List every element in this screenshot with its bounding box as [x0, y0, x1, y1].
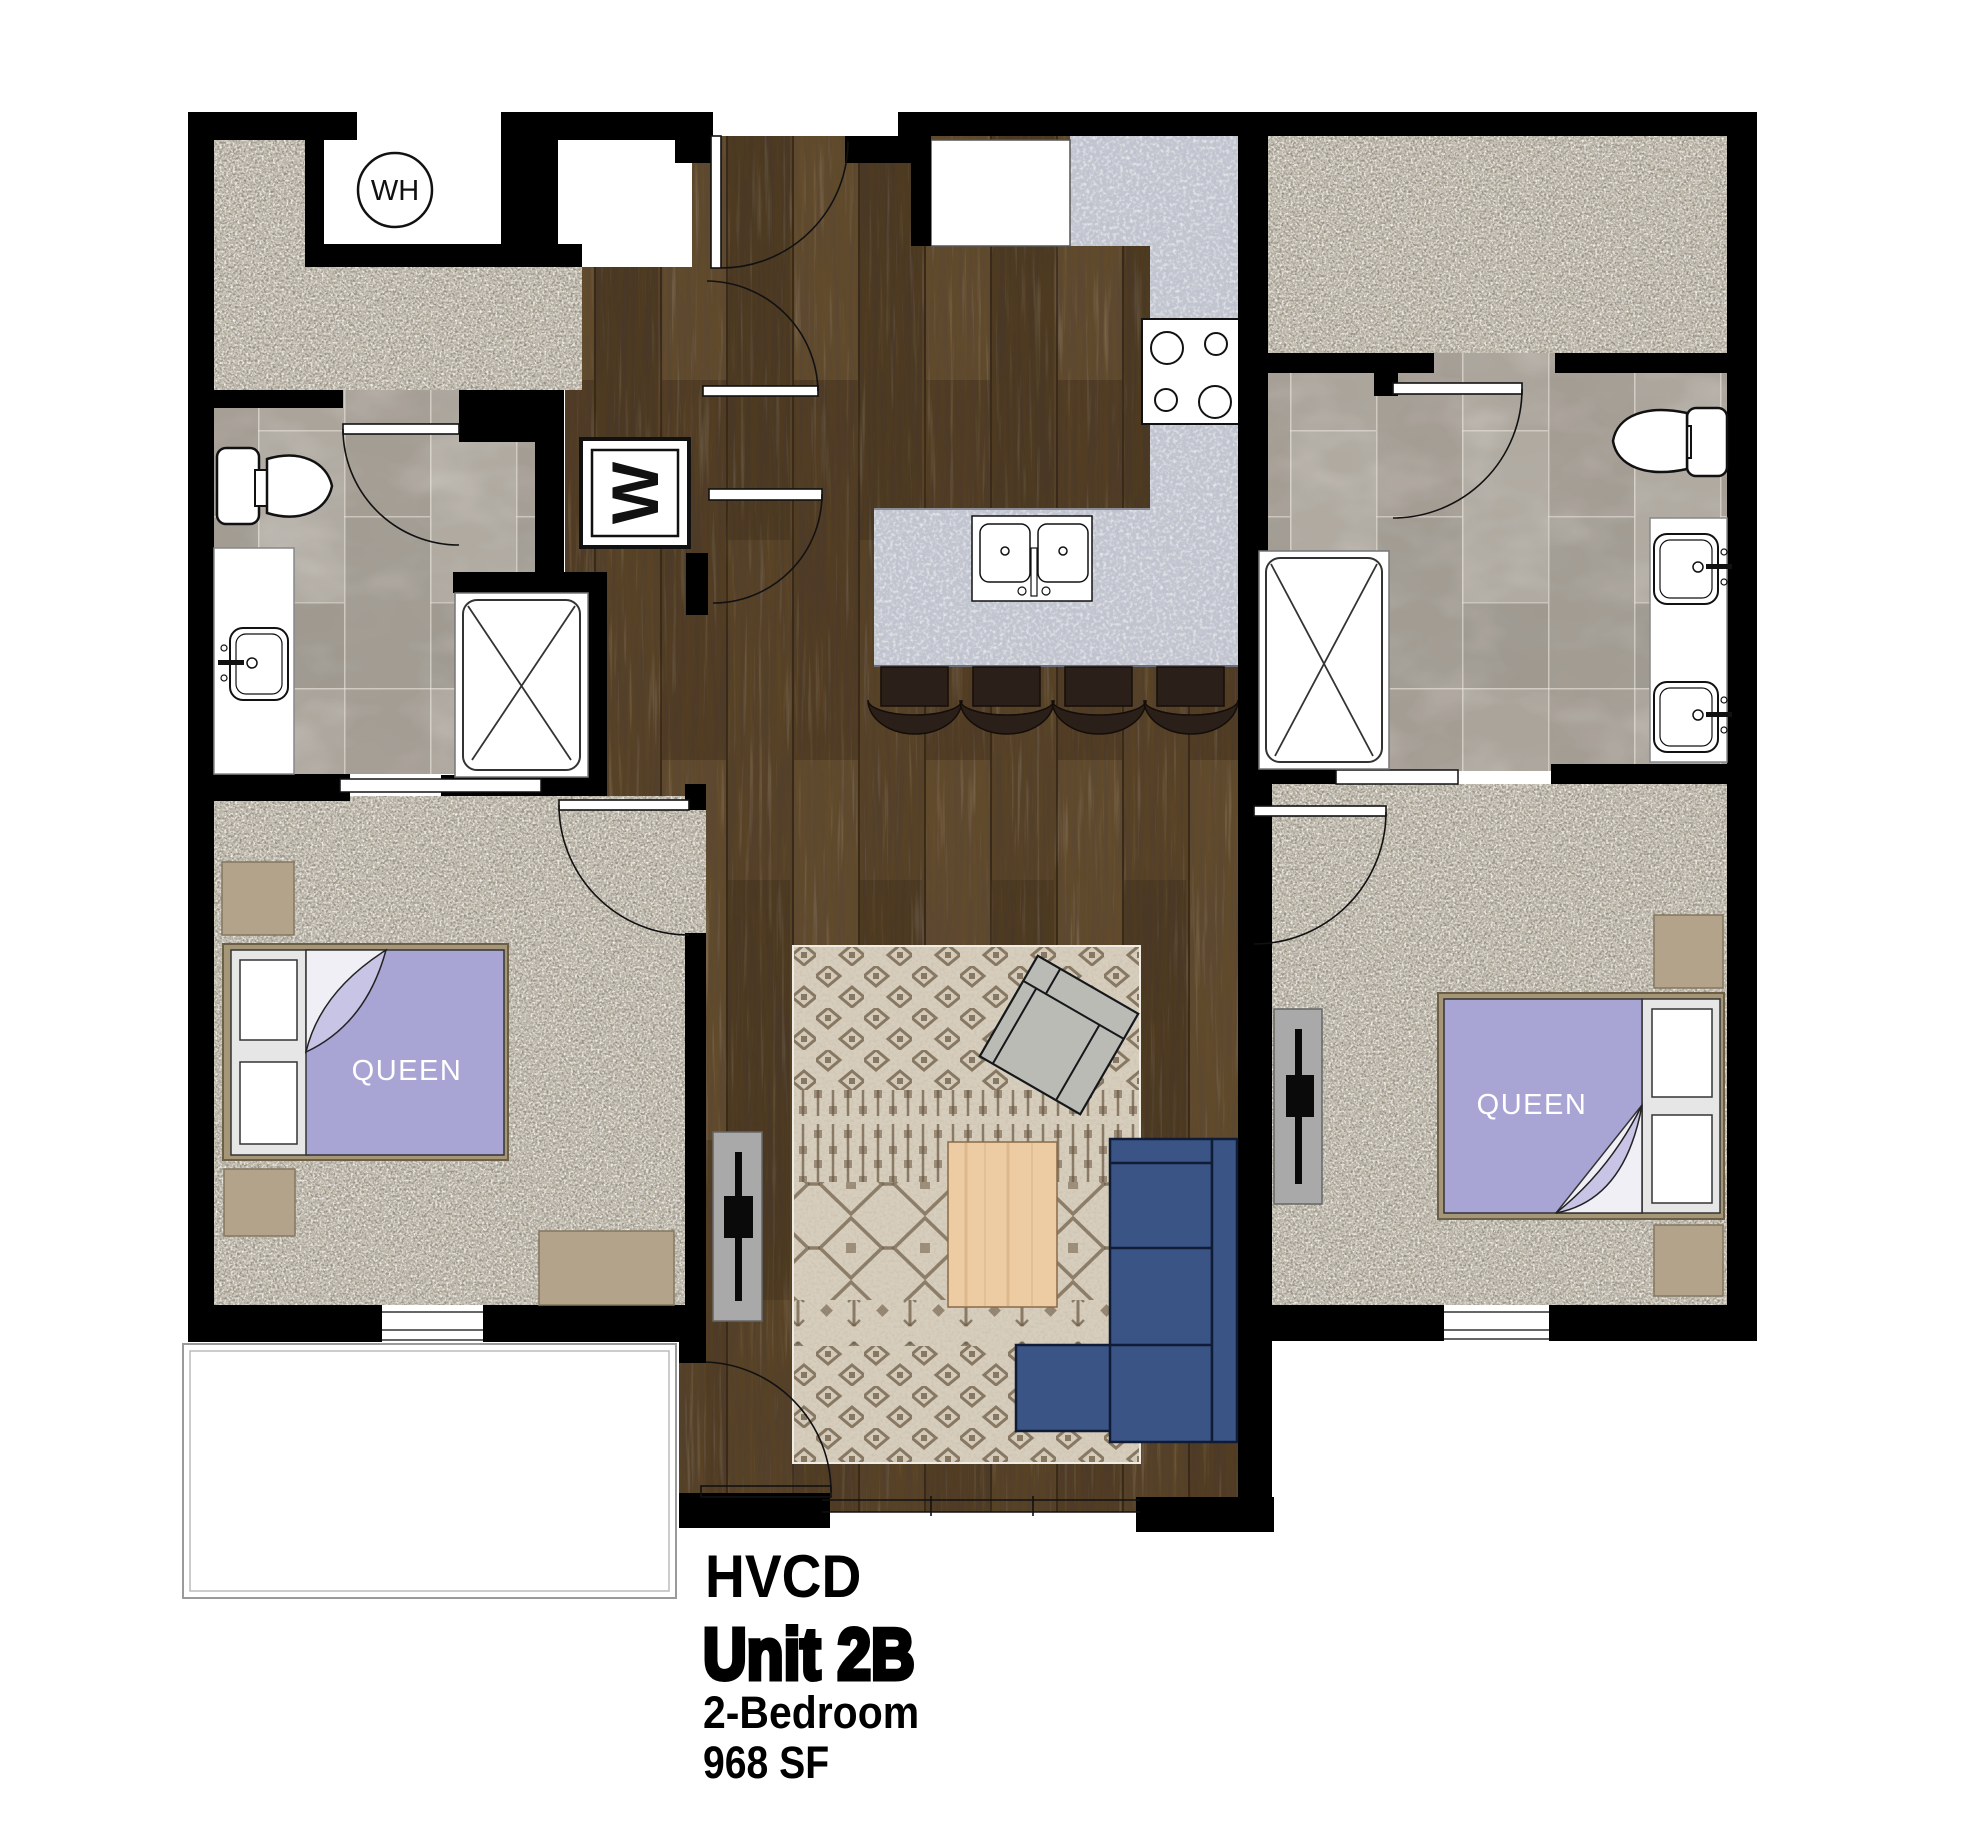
- svg-text:HVCD: HVCD: [705, 1544, 861, 1611]
- svg-text:QUEEN: QUEEN: [1477, 1089, 1588, 1121]
- svg-text:Unit 2B: Unit 2B: [703, 1615, 915, 1695]
- svg-text:W: W: [598, 461, 672, 524]
- svg-text:QUEEN: QUEEN: [352, 1055, 463, 1087]
- svg-text:2-Bedroom: 2-Bedroom: [703, 1688, 919, 1738]
- svg-text:WH: WH: [371, 175, 419, 207]
- svg-text:968 SF: 968 SF: [703, 1737, 829, 1787]
